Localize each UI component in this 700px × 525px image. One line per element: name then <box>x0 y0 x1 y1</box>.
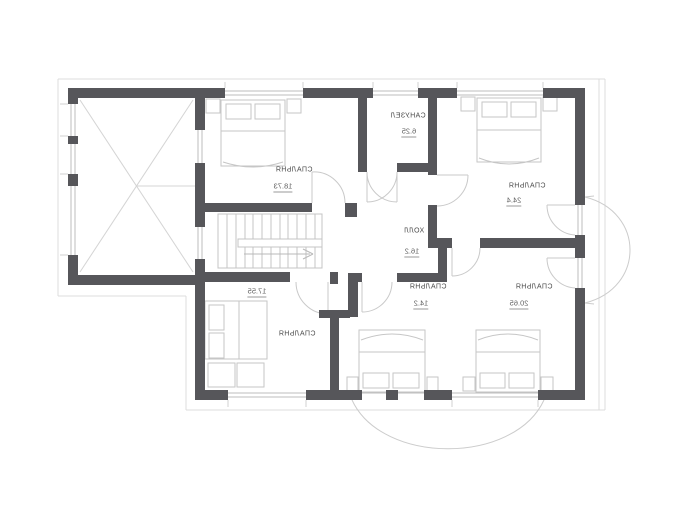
garage-roof-hatch <box>80 100 198 272</box>
bed-symbol-top-right <box>461 97 557 164</box>
room-label-hall: ХОЛЛ <box>404 228 425 235</box>
bed-symbol-bottom-right <box>463 330 553 392</box>
bottom-balcony-outline <box>352 400 544 449</box>
room-area-bottom-middle-bedroom: 14.2 <box>414 299 429 310</box>
floor-plan-page: СПАЛЬНЯ 18.73 САНУЗЕЛ 6.25 СПАЛЬНЯ 24.4 … <box>0 0 700 525</box>
bed-symbol-bottom-middle <box>347 330 438 392</box>
floor-plan-drawing <box>0 0 700 525</box>
right-balcony-outline <box>585 196 630 304</box>
room-area-bottom-left-bedroom: 17.55 <box>248 287 267 298</box>
room-label-bottom-right-bedroom: СПАЛЬНЯ <box>515 284 552 291</box>
room-area-bathroom: 6.25 <box>402 127 417 138</box>
stairs-symbol <box>218 214 322 268</box>
room-area-hall: 16.2 <box>405 247 420 258</box>
room-area-top-left-bedroom: 18.73 <box>274 182 293 193</box>
bed-symbol-bottom-left <box>205 301 267 387</box>
bed-symbol-top-left <box>206 99 301 167</box>
room-area-bottom-right-bedroom: 20.65 <box>510 299 529 310</box>
room-label-bottom-left-bedroom: СПАЛЬНЯ <box>278 331 315 338</box>
room-label-bathroom: САНУЗЕЛ <box>390 113 425 120</box>
room-area-top-right-bedroom: 24.4 <box>507 196 522 207</box>
room-label-top-left-bedroom: СПАЛЬНЯ <box>275 167 312 174</box>
room-label-top-right-bedroom: СПАЛЬНЯ <box>508 183 545 190</box>
room-label-bottom-middle-bedroom: СПАЛЬНЯ <box>409 284 446 291</box>
